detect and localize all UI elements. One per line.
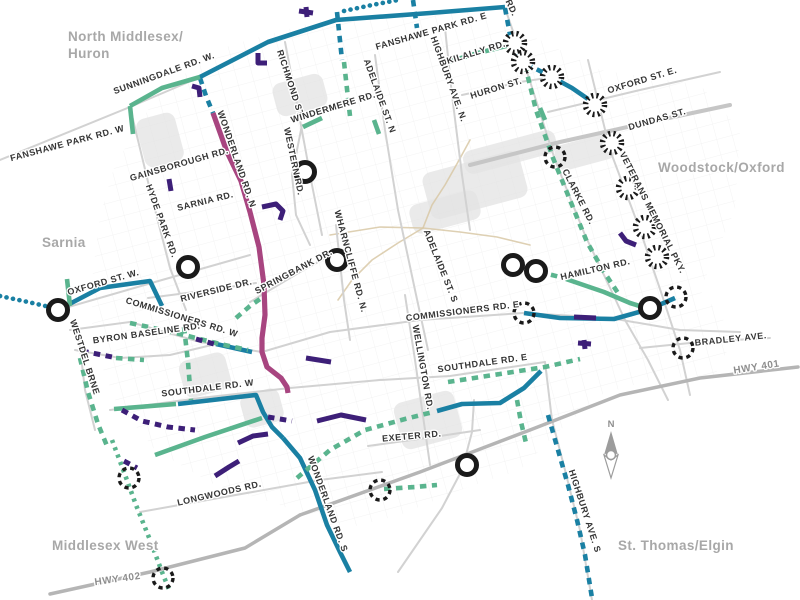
- region-label: Sarnia: [42, 235, 86, 250]
- starburst-marker: [543, 68, 562, 87]
- region-label: North Middlesex/Huron: [68, 29, 183, 61]
- ring-marker: [641, 299, 660, 318]
- map-viewport: SUNNINGDALE RD. W.FANSHAWE PARK RD. WFAN…: [0, 0, 800, 600]
- route-p-tee-d: [584, 340, 585, 349]
- compass-n-label: N: [608, 419, 615, 430]
- starburst-marker: [648, 248, 667, 267]
- region-label: Middlesex West: [52, 538, 159, 553]
- compass: N: [604, 419, 618, 478]
- starburst-marker: [514, 53, 533, 72]
- starburst-marker: [603, 134, 622, 153]
- ring-marker: [49, 301, 68, 320]
- route-north-dotted: [344, 0, 398, 11]
- starburst-marker: [506, 34, 525, 53]
- ring-marker: [527, 262, 546, 281]
- route-p-tee-b: [306, 7, 307, 17]
- route-hyde-park-n: [130, 106, 133, 134]
- compass-hub: [607, 451, 616, 460]
- road-label: HWY 401: [733, 358, 781, 376]
- road-label: FANSHAWE PARK RD. W: [9, 123, 125, 163]
- route-oxford-w-dotted: [0, 296, 54, 308]
- ring-marker: [179, 258, 198, 277]
- ring-marker: [504, 256, 523, 275]
- base-road: [50, 515, 300, 594]
- region-label: Woodstock/Oxford: [658, 160, 785, 175]
- city-cycling-map: SUNNINGDALE RD. W.FANSHAWE PARK RD. WFAN…: [0, 0, 800, 600]
- road-label: HIGHBURY AVE. S: [567, 468, 603, 554]
- ring-marker: [458, 456, 477, 475]
- region-label: St. Thomas/Elgin: [618, 538, 734, 553]
- route-gainsborough-tick: [169, 179, 171, 191]
- road-label: HWY 402: [94, 571, 142, 588]
- starburst-marker: [586, 96, 605, 115]
- route-p-commissioners-e: [574, 317, 596, 318]
